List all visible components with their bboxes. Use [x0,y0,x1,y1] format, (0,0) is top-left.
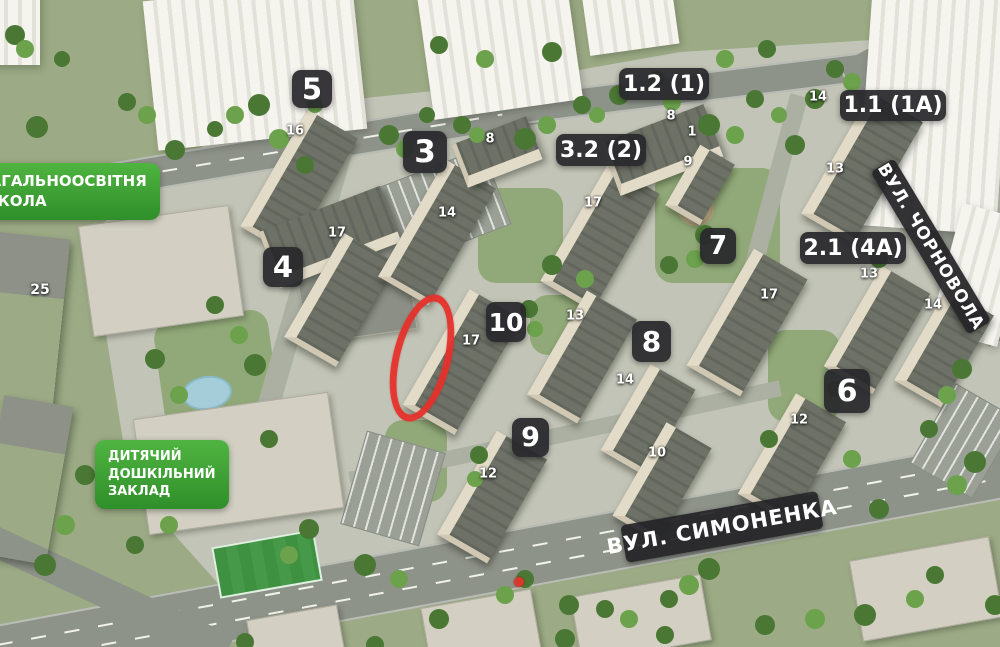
floor-label: 14 [438,206,456,221]
school-label: ЗАГАЛЬНООСВІТНЯ ШКОЛА [0,163,160,220]
building-south [849,536,1000,641]
school-label-line2: ШКОЛА [0,191,147,211]
badge-building-5: 5 [292,70,332,108]
kindergarten-label: ДИТЯЧИЙ ДОШКІЛЬНИЙ ЗАКЛАД [95,440,229,509]
floor-label: 17 [584,196,602,211]
floor-label: 14 [924,298,942,313]
badge-building-8: 8 [632,321,671,362]
floor-label: 17 [760,288,778,303]
floor-label: 17 [328,226,346,241]
floor-label: 13 [826,162,844,177]
residential-tower [0,395,73,565]
school-building [78,205,244,337]
kindergarten-label-line1: ДИТЯЧИЙ [108,448,216,466]
badge-building-6: 6 [824,369,870,413]
floor-label: 1 [687,125,696,140]
map-marker-dot [514,577,524,587]
floor-label: 25 [30,282,49,298]
white-tower [417,0,583,120]
floor-label: 13 [860,267,878,282]
floor-label: 14 [616,373,634,388]
school-label-line1: ЗАГАЛЬНООСВІТНЯ [0,171,147,191]
badge-building-3-2: 3.2 (2) [556,134,646,166]
white-tower [0,0,40,65]
floor-label: 10 [648,446,666,461]
badge-building-1-1: 1.1 (1A) [840,90,946,121]
floor-label: 13 [566,309,584,324]
kindergarten-label-line3: ЗАКЛАД [108,483,216,501]
badge-building-9: 9 [512,418,549,457]
floor-label: 14 [809,90,827,105]
floor-label: 12 [479,467,497,482]
badge-building-3: 3 [403,131,447,173]
badge-building-10: 10 [486,302,526,342]
site-plan-map: 16 17 25 14 8 17 8 1 9 14 13 17 13 14 13… [0,0,1000,647]
white-tower [581,0,680,56]
building-south [570,574,712,647]
floor-label: 17 [462,334,480,349]
badge-building-2-1: 2.1 (4A) [800,232,906,264]
kindergarten-label-line2: ДОШКІЛЬНИЙ [108,466,216,484]
floor-label: 8 [666,109,675,124]
floor-label: 8 [485,132,494,147]
badge-building-4: 4 [263,247,303,287]
floor-label: 9 [683,155,692,170]
badge-building-7: 7 [700,228,736,264]
badge-building-1-2: 1.2 (1) [619,68,709,100]
floor-label: 12 [790,413,808,428]
floor-label: 16 [286,124,304,139]
